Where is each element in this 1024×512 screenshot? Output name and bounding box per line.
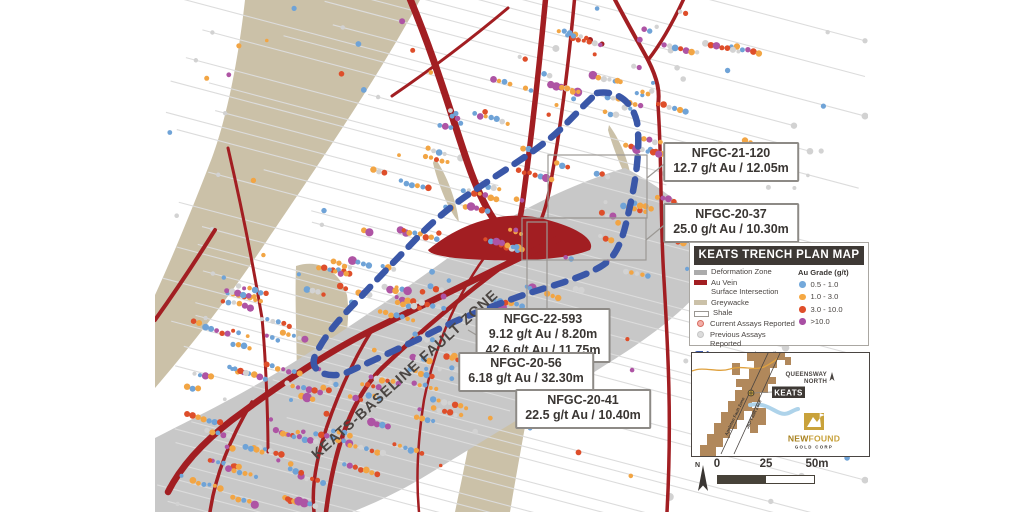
callout-nfgc-20-56: NFGC-20-56 6.18 g/t Au / 32.30m <box>458 352 594 392</box>
previous-assays-swatch <box>697 331 704 338</box>
scale-tick-0: 0 <box>714 458 720 470</box>
greywacke-swatch <box>694 300 707 305</box>
au-vein-swatch <box>694 280 707 285</box>
callout-title: NFGC-22-593 <box>486 312 601 327</box>
legend-item-greywacke: Greywacke <box>694 299 798 308</box>
grade-item-high: 3.0 - 10.0 <box>798 305 862 314</box>
north-arrow-icon: N <box>692 459 710 493</box>
keats-marker-icon <box>748 390 754 396</box>
callout-value: 9.12 g/t Au / 8.20m <box>486 327 601 342</box>
callout-value: 6.18 g/t Au / 32.30m <box>468 371 584 386</box>
scale-bar-filled-segment <box>718 476 766 483</box>
legend-item-previous-assays: Previous Assays Reported <box>694 331 798 348</box>
inset-region-label-1: QUEENSWAY <box>786 371 828 378</box>
inset-region-label-2: NORTH <box>804 378 827 385</box>
callout-title: NFGC-21-120 <box>673 146 789 161</box>
callout-value: 25.0 g/t Au / 10.30m <box>673 222 789 237</box>
inset-location-map: Appleton Fault Zone JBP Fault Zone KEATS… <box>691 352 870 457</box>
callout-title: NFGC-20-41 <box>525 393 641 408</box>
newfound-logo: NEWFOUND GOLD CORP <box>788 413 840 450</box>
grade-dot-magenta <box>799 318 806 325</box>
inset-north-arrow-icon <box>830 372 835 381</box>
scale-tick-50: 50m <box>805 458 828 470</box>
callout-nfgc-21-120: NFGC-21-120 12.7 g/t Au / 12.05m <box>663 142 799 182</box>
north-label: N <box>695 462 700 469</box>
scale-bar-segments <box>717 475 815 484</box>
callout-nfgc-20-41: NFGC-20-41 22.5 g/t Au / 10.40m <box>515 389 651 429</box>
scale-tick-25: 25 <box>760 458 773 470</box>
grade-dot-blue <box>799 281 806 288</box>
legend-title: KEATS TRENCH PLAN MAP <box>694 246 864 265</box>
legend-item-current-assays: Current Assays Reported <box>694 320 798 329</box>
callout-title: NFGC-20-56 <box>468 356 584 371</box>
grade-item-low: 0.5 - 1.0 <box>798 280 862 289</box>
callout-value: 12.7 g/t Au / 12.05m <box>673 161 789 176</box>
callout-value: 22.5 g/t Au / 10.40m <box>525 408 641 423</box>
grade-dot-orange <box>799 294 806 301</box>
au-grade-title: Au Grade (g/t) <box>798 268 862 277</box>
grade-item-vhigh: >10.0 <box>798 317 862 326</box>
inset-map-canvas: Appleton Fault Zone JBP Fault Zone KEATS… <box>692 353 869 456</box>
callout-nfgc-20-37: NFGC-20-37 25.0 g/t Au / 10.30m <box>663 203 799 243</box>
gold-corp-label: GOLD CORP <box>795 445 833 450</box>
callout-title: NFGC-20-37 <box>673 207 789 222</box>
keats-tag-label: KEATS <box>774 388 803 397</box>
deformation-zone-swatch <box>694 270 707 275</box>
keats-trench-plan-map-figure: KEATS-BASELINE FAULT ZONE NFGC-21-120 12… <box>0 0 1024 512</box>
legend-item-shale: Shale <box>694 309 798 318</box>
scale-bar: N 0 25 50m <box>690 455 868 497</box>
grade-item-mid: 1.0 - 3.0 <box>798 292 862 301</box>
plan-map-canvas: KEATS-BASELINE FAULT ZONE <box>0 0 1024 512</box>
legend-item-au-vein: Au Vein Surface Intersection <box>694 279 798 296</box>
current-assays-swatch <box>697 320 704 327</box>
newfound-wordmark: NEWFOUND <box>788 434 840 444</box>
grade-dot-red <box>799 306 806 313</box>
legend-item-deformation-zone: Deformation Zone <box>694 268 798 277</box>
shale-swatch <box>694 311 709 317</box>
legend-panel: KEATS TRENCH PLAN MAP Deformation Zone A… <box>689 242 869 346</box>
